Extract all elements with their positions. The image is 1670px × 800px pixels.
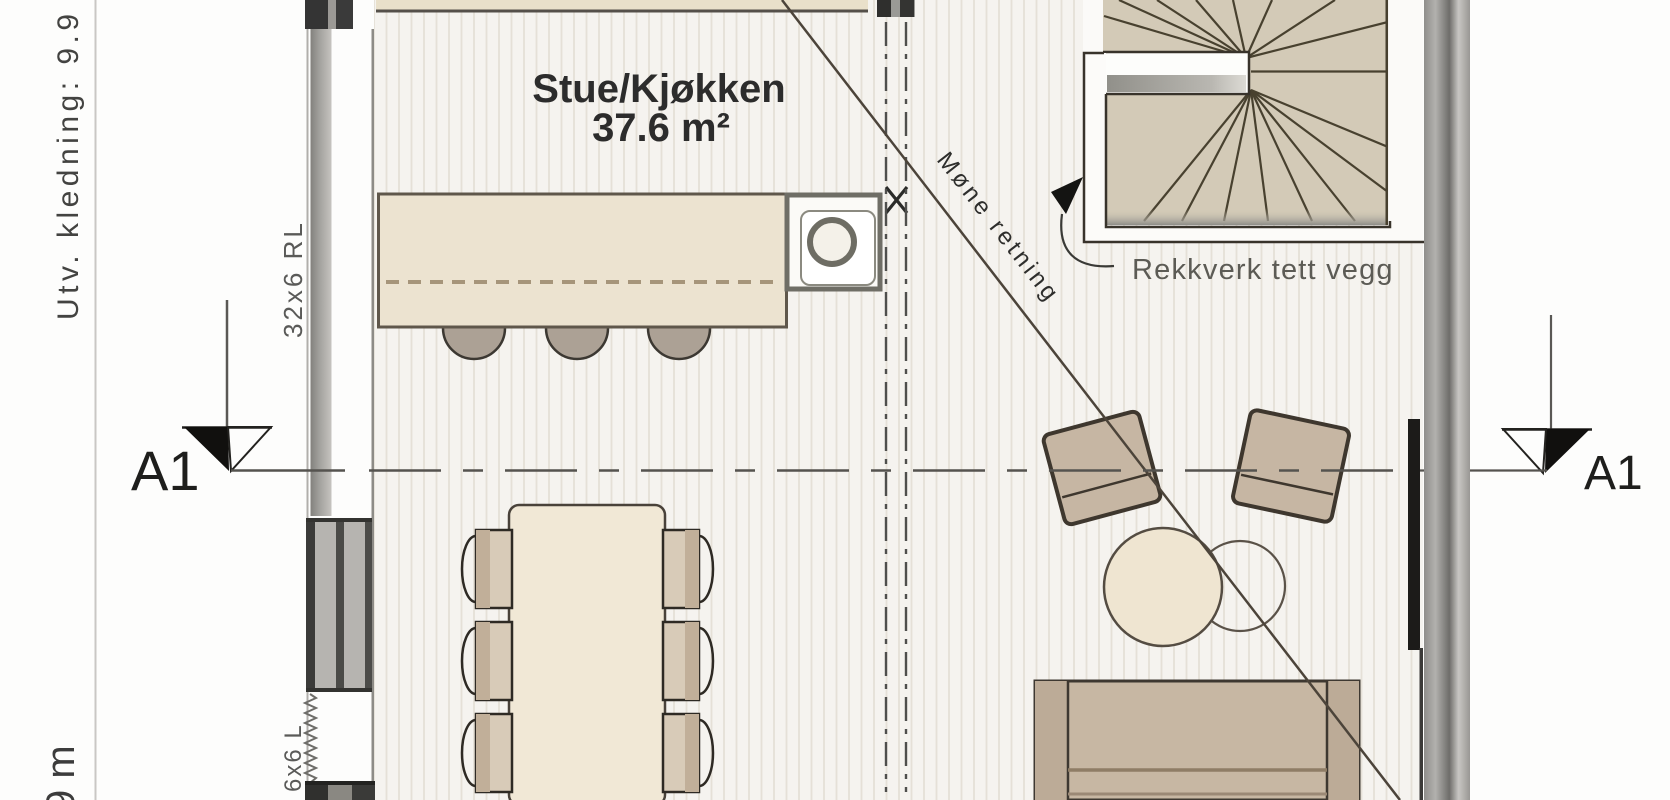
svg-text:A1: A1	[1584, 447, 1643, 500]
svg-text:Rekkverk tett vegg: Rekkverk tett vegg	[1132, 254, 1394, 286]
svg-text:9 m: 9 m	[39, 745, 83, 800]
svg-text:37.6 m²: 37.6 m²	[592, 106, 730, 150]
svg-text:32x6 RL: 32x6 RL	[278, 220, 308, 338]
svg-text:A1: A1	[131, 439, 200, 502]
svg-text:Utv. kledning: 9.9: Utv. kledning: 9.9	[52, 9, 85, 320]
svg-text:Stue/Kjøkken: Stue/Kjøkken	[532, 67, 785, 111]
svg-text:6x6 L: 6x6 L	[280, 723, 307, 792]
